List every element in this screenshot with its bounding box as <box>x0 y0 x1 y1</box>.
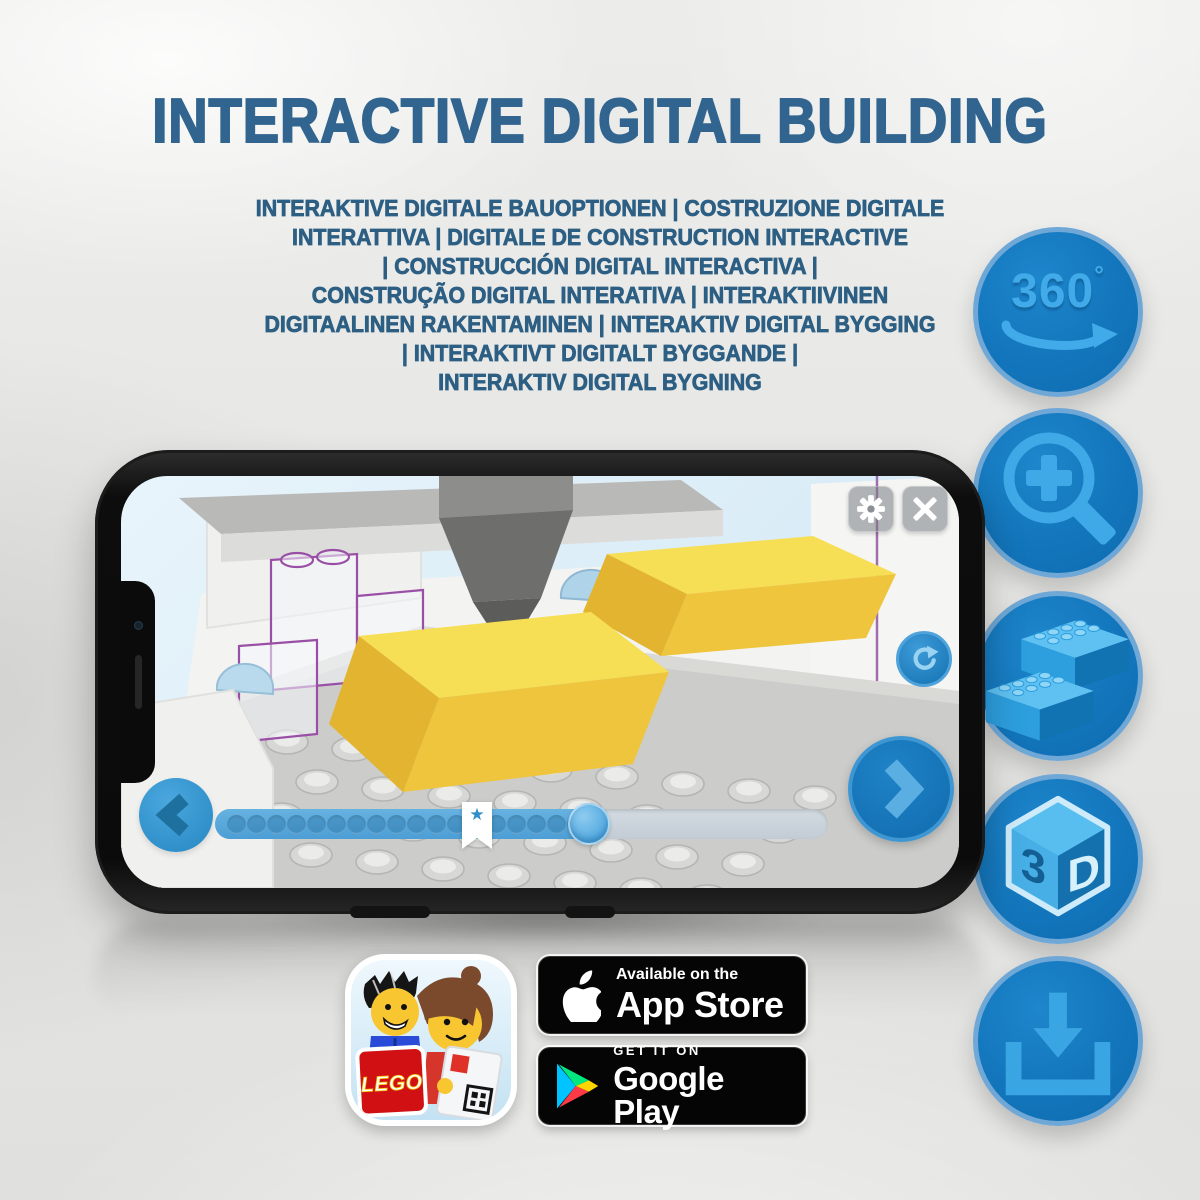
lego-bricks-icon <box>986 604 1131 749</box>
progress-dot <box>387 815 406 834</box>
feature-bricks-badge <box>973 591 1143 761</box>
apple-icon <box>557 968 601 1022</box>
svg-text:LEGO: LEGO <box>360 1071 423 1097</box>
progress-dot <box>247 815 266 834</box>
download-icon <box>984 967 1132 1115</box>
subtitle: INTERAKTIVE DIGITALE BAUOPTIONEN | COSTR… <box>42 194 1158 397</box>
slider-knob[interactable] <box>568 803 610 845</box>
subtitle-line: INTERAKTIV DIGITAL BYGNING <box>42 368 1158 397</box>
lego-app-artwork: LEGO <box>351 960 511 1120</box>
progress-dot <box>427 815 446 834</box>
phone-mockup: ★ <box>95 450 985 914</box>
progress-dot <box>267 815 286 834</box>
google-play-text: GET IT ON Google Play <box>613 1044 787 1128</box>
progress-dot <box>527 815 546 834</box>
subtitle-line: | CONSTRUCCIÓN DIGITAL INTERACTIVA | <box>42 252 1158 281</box>
progress-fill <box>215 809 589 839</box>
close-icon <box>908 492 942 526</box>
progress-dot <box>547 815 566 834</box>
star-icon: ★ <box>462 805 492 825</box>
app-store-badge[interactable]: Available on the App Store <box>538 956 806 1034</box>
volume-button <box>350 906 430 918</box>
feature-zoom-badge <box>973 408 1143 578</box>
page-title: INTERACTIVE DIGITAL BUILDING <box>72 86 1128 157</box>
app-screen: ★ <box>121 476 959 888</box>
google-play-icon <box>557 1062 598 1110</box>
next-step-button[interactable] <box>848 736 954 842</box>
cube-3d-icon: 3 D <box>984 785 1132 933</box>
feature-download-badge <box>973 956 1143 1126</box>
google-play-badge[interactable]: GET IT ON Google Play <box>538 1047 806 1125</box>
subtitle-line: INTERATTIVA | DIGITALE DE CONSTRUCTION I… <box>42 223 1158 252</box>
chevron-right-icon <box>852 736 950 842</box>
power-button <box>565 906 615 918</box>
rotate-model-button[interactable] <box>896 631 952 687</box>
progress-dot <box>227 815 246 834</box>
lego-app-icon[interactable]: LEGO <box>345 954 517 1126</box>
progress-dot <box>507 815 526 834</box>
zoom-in-magnifier-icon <box>983 418 1133 568</box>
progress-dot <box>307 815 326 834</box>
settings-button[interactable] <box>848 486 894 532</box>
close-button[interactable] <box>902 486 948 532</box>
subtitle-line: | INTERAKTIVT DIGITALT BYGGANDE | <box>42 339 1158 368</box>
progress-dot <box>407 815 426 834</box>
rotate-icon <box>907 642 941 676</box>
bookmark-flag: ★ <box>462 802 492 849</box>
build-progress-slider[interactable]: ★ <box>215 809 828 839</box>
chevron-left-icon <box>139 778 213 852</box>
progress-dot <box>327 815 346 834</box>
subtitle-line: INTERAKTIVE DIGITALE BAUOPTIONEN | COSTR… <box>42 194 1158 223</box>
progress-dot <box>367 815 386 834</box>
phone-notch <box>121 581 155 783</box>
gear-icon <box>853 491 889 527</box>
camera-dot <box>134 621 143 630</box>
svg-text:D: D <box>1067 841 1100 902</box>
previous-step-button[interactable] <box>139 778 213 852</box>
progress-dot <box>347 815 366 834</box>
subtitle-line: DIGITAALINEN RAKENTAMINEN | INTERAKTIV D… <box>42 310 1158 339</box>
svg-text:3: 3 <box>1021 837 1046 896</box>
speaker-slit <box>135 655 142 709</box>
subtitle-line: CONSTRUÇÃO DIGITAL INTERATIVA | INTERAKT… <box>42 281 1158 310</box>
progress-dot <box>287 815 306 834</box>
poster-canvas: INTERACTIVE DIGITAL BUILDING INTERAKTIVE… <box>0 0 1200 1200</box>
app-store-text: Available on the App Store <box>616 967 784 1023</box>
feature-3d-badge: 3 D <box>973 774 1143 944</box>
